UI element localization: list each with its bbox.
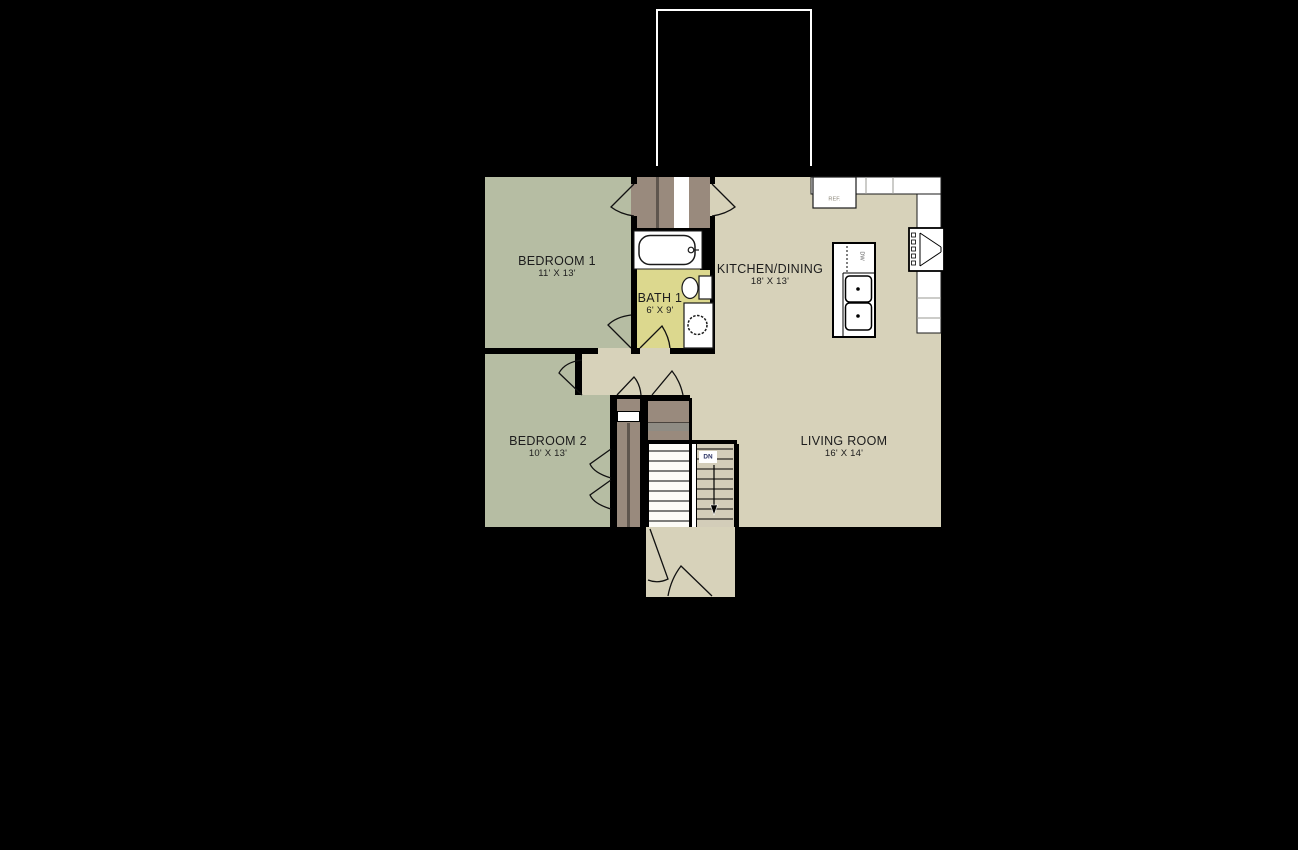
refrigerator: [813, 177, 856, 208]
hall-closet-door: [652, 371, 683, 395]
room-name: KITCHEN/DINING: [717, 262, 823, 276]
floorplan-canvas: BEDROOM 1 11' X 13' BATH 1 6' X 9' KITCH…: [0, 0, 1298, 850]
dishwasher-label: DW: [859, 249, 865, 263]
bedroom-2-label: BEDROOM 2 10' X 13': [478, 434, 618, 460]
room-dims: 10' X 13': [478, 448, 618, 460]
room-name: LIVING ROOM: [801, 434, 888, 448]
bedroom-2-closet-bifold: [590, 480, 611, 509]
refrigerator-label: REF.: [819, 196, 849, 202]
bedroom-2-door: [559, 360, 582, 395]
bath-1-label: BATH 1 6' X 9': [617, 291, 703, 317]
bedroom-1-label: BEDROOM 1 11' X 13': [487, 254, 627, 280]
kitchen-island: [833, 243, 875, 337]
stairs-down-arrow: [711, 465, 718, 515]
floorplan-annotations: [0, 0, 1298, 850]
entry-door: [648, 529, 668, 582]
stove: [909, 228, 944, 271]
room-dims: 18' X 13': [690, 276, 850, 288]
room-name: BATH 1: [638, 291, 683, 305]
kitchen-dining-label: KITCHEN/DINING 18' X 13': [690, 262, 850, 288]
room-name: BEDROOM 2: [509, 434, 587, 448]
linen-closet-door: [617, 377, 641, 395]
room-dims: 6' X 9': [617, 305, 703, 317]
stair-treads: [649, 449, 733, 521]
room-name: BEDROOM 1: [518, 254, 596, 268]
room-dims: 11' X 13': [487, 268, 627, 280]
stairs-down-label: DN: [701, 454, 715, 460]
front-door: [668, 566, 712, 596]
bath-1-door: [640, 326, 670, 348]
kitchen-door: [712, 184, 735, 216]
bedroom-1-closet-door: [611, 184, 634, 216]
living-room-label: LIVING ROOM 16' X 14': [764, 434, 924, 460]
bedroom-1-door: [608, 315, 631, 348]
room-dims: 16' X 14': [764, 448, 924, 460]
